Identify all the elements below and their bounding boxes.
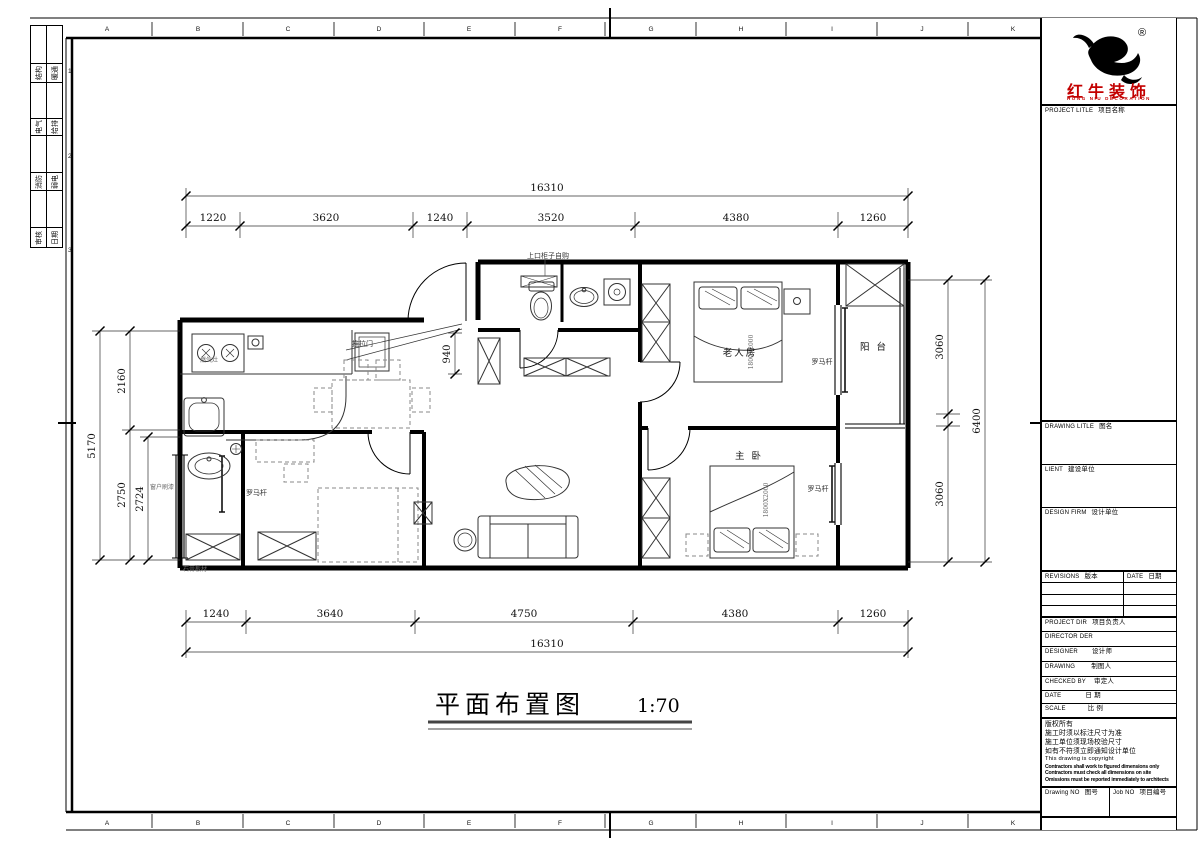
bedroom-door-arc — [368, 432, 410, 474]
copyright-line-en: This drawing is copyright — [1045, 756, 1173, 764]
plan-labels: 老人房 主 卧 阳 台 上口柜子自购 推拉门 罗马杆 罗马杆 罗马杆 窗户刷漆 … — [150, 251, 888, 573]
signoff-label: 审核 — [34, 231, 44, 245]
field-label-zh: 项目负责人 — [1092, 619, 1126, 626]
elder-room — [642, 282, 810, 382]
note-curtain-rod: 罗马杆 — [808, 484, 829, 493]
note-stove: 燃气灶 — [200, 356, 218, 364]
note-curtain-rod: 罗马杆 — [812, 357, 833, 366]
curtain-rod-elder — [842, 308, 848, 392]
grid-letter: B — [196, 26, 200, 33]
field-label-zh: 制图人 — [1091, 663, 1111, 670]
window-balcony-right — [900, 268, 904, 424]
plan-canvas: A B C D E F G H I J K A B C D E F G H I … — [0, 0, 1200, 844]
note-sliding-door: 推拉门 — [352, 339, 373, 348]
bull-horn — [1073, 35, 1094, 48]
field-label-en: DIRECTOR DER — [1045, 634, 1093, 640]
revisions-date-divider — [1123, 570, 1124, 616]
signoff-cell — [46, 82, 63, 119]
field-label-zh: 图名 — [1099, 423, 1112, 430]
signoff-label: 弱电 — [50, 175, 60, 189]
field-checked-by: CHECKED BY审定人 — [1042, 676, 1176, 690]
exterior-walls — [180, 262, 908, 568]
field-revisions: REVISIONS版本 DATE日期 — [1042, 570, 1176, 582]
grid-letter: H — [739, 26, 744, 33]
nightstand — [796, 534, 818, 556]
field-drawing-by: DRAWING制图人 — [1042, 661, 1176, 676]
room-label-master: 主 卧 — [735, 450, 763, 462]
interior-walls — [180, 262, 838, 568]
field-label-zh: 审定人 — [1094, 678, 1114, 685]
signoff-cell: 日期 — [46, 227, 63, 248]
field-project-dir: PROJECT DIR项目负责人 — [1042, 616, 1176, 631]
row-number: 1 — [68, 68, 72, 75]
signoff-cell: 暖通 — [46, 63, 63, 83]
signoff-cell — [30, 82, 47, 119]
drawing-job-divider — [1109, 786, 1110, 818]
dim-bottom-seg: 3640 — [317, 608, 344, 620]
field-label-zh: 日期 — [1148, 573, 1161, 580]
field-project: PROJECT LITLE项目名称 — [1042, 104, 1176, 420]
small-bathroom — [186, 444, 242, 561]
signoff-label: 暖通 — [50, 66, 60, 80]
dim-left-inner: 2724 — [135, 486, 146, 511]
row-number: 2 — [68, 153, 72, 160]
signoff-cell — [30, 190, 47, 228]
signoff-cell — [30, 135, 47, 173]
field-label-en: PROJECT DIR — [1045, 620, 1087, 626]
signoff-cell: 给排 — [46, 118, 63, 136]
fridge — [355, 333, 389, 371]
master-room — [642, 466, 818, 558]
field-label-zh: 设计单位 — [1092, 509, 1119, 516]
side-table — [454, 529, 476, 551]
field-label-en: DESIGN FIRM — [1045, 510, 1087, 516]
grid-letter: A — [105, 26, 110, 33]
grid-letter: J — [920, 26, 923, 33]
dining-set — [314, 360, 430, 428]
field-label-en: SCALE — [1045, 706, 1066, 712]
bathroom-door-arc — [520, 330, 558, 368]
drawing-sheet: A B C D E F G H I J K A B C D E F G H I … — [0, 0, 1200, 844]
signoff-cell — [46, 25, 63, 64]
washing-machine — [604, 279, 630, 305]
signoff-cell: 消防 — [30, 172, 47, 191]
row-number: 3 — [68, 247, 72, 254]
master-room-door-arc — [648, 428, 690, 470]
copyright-line: 如有不符须立即通知设计单位 — [1045, 747, 1173, 756]
curtain-rod-master — [829, 466, 835, 522]
dim-right-seg: 3060 — [935, 334, 946, 359]
field-date: DATE日 期 — [1042, 690, 1176, 703]
grid-letter: G — [648, 26, 653, 33]
note-gypsum: 石膏板材 — [183, 565, 207, 573]
windows — [172, 268, 905, 558]
field-label-zh: 比 例 — [1088, 705, 1103, 712]
field-design-firm: DESIGN FIRM设计单位 — [1042, 507, 1176, 570]
field-label-en: DRAWING — [1045, 664, 1075, 670]
dining-table — [332, 380, 410, 428]
signoff-cell: 结构 — [30, 63, 47, 83]
grid-letter: I — [831, 820, 833, 827]
grid-ruler-bottom: A B C D E F G H I J K — [105, 814, 1016, 828]
small-bedroom — [256, 440, 432, 562]
grid-letter: F — [558, 26, 562, 33]
field-drawing-title: DRAWING LITLE图名 — [1042, 420, 1176, 464]
company-name-en: HONG NIU DECORATION — [1042, 96, 1176, 101]
grid-ruler-top: A B C D E F G H I J K — [105, 22, 1016, 36]
field-label-zh: 项目编号 — [1140, 789, 1167, 796]
signoff-cell: 弱电 — [46, 172, 63, 191]
window-balcony-bottom — [845, 424, 905, 428]
signoff-label: 电气 — [34, 120, 44, 134]
window-elder — [835, 305, 841, 395]
dim-right-total: 6400 — [972, 408, 983, 433]
field-label-zh: 项目名称 — [1098, 107, 1125, 114]
hall-cabinet — [524, 358, 610, 376]
curtain-rod-bedroom — [219, 456, 225, 512]
corridor-cabinets — [478, 338, 610, 384]
grid-letter: F — [558, 820, 562, 827]
grid-letter: C — [286, 26, 291, 33]
dim-top-seg: 1260 — [860, 212, 887, 224]
dim-top-seg: 4380 — [723, 212, 750, 224]
view-title: 平面布置图 — [435, 690, 585, 719]
bed — [710, 466, 794, 558]
nightstand — [784, 289, 810, 314]
dim-top-total: 16310 — [530, 182, 563, 194]
signoff-label: 日期 — [50, 231, 60, 245]
bull-body — [1088, 36, 1140, 75]
grid-letter: E — [467, 820, 472, 827]
field-client: LIENT建设单位 — [1042, 464, 1176, 507]
signoff-cell — [30, 25, 47, 64]
field-label-en: Drawing NO — [1045, 790, 1080, 796]
copyright-line-en: Contractors shall work to figured dimens… — [1045, 764, 1173, 771]
dim-right-seg: 3060 — [935, 481, 946, 506]
dim-top-seg: 3620 — [313, 212, 340, 224]
bed-size-label: 1800X2000 — [748, 334, 755, 369]
room-label-balcony: 阳 台 — [860, 341, 888, 353]
field-label-zh: 设计师 — [1092, 648, 1112, 655]
grid-letter: H — [739, 820, 744, 827]
revision-row-empty — [1042, 582, 1176, 594]
grid-letter: I — [831, 26, 833, 33]
field-label-en: Job NO — [1113, 790, 1135, 796]
field-label-en: DRAWING LITLE — [1045, 424, 1094, 430]
sheet-frame — [30, 8, 1197, 838]
grid-letter: J — [920, 820, 923, 827]
field-label-zh: 图号 — [1085, 789, 1098, 796]
kitchen — [180, 324, 462, 440]
elder-room-door-arc — [640, 362, 680, 402]
field-label-en: REVISIONS — [1045, 574, 1079, 580]
copyright-line-en: Contractors must check all dimensions on… — [1045, 770, 1173, 777]
dim-left-seg: 2750 — [117, 482, 128, 507]
field-label-en: DATE — [1045, 693, 1061, 699]
dim-bottom-seg: 1260 — [860, 608, 887, 620]
window-master — [835, 463, 841, 525]
dim-left-seg: 2160 — [117, 368, 128, 393]
field-label-zh: 建设单位 — [1068, 466, 1095, 473]
dim-top-seg: 3520 — [538, 212, 565, 224]
signoff-cell — [46, 135, 63, 173]
copyright-block: 版权所有 施工时须以标注尺寸为准 施工单位须现场校验尺寸 如有不符须立即通知设计… — [1042, 717, 1176, 786]
note-curtain-rod: 罗马杆 — [246, 488, 267, 497]
signoff-cell — [46, 190, 63, 228]
bed-size-label: 1800X2000 — [763, 482, 770, 517]
grid-letter: D — [377, 820, 382, 827]
dim-top-seg: 1240 — [427, 212, 454, 224]
desk — [256, 440, 314, 462]
signoff-label: 给排 — [50, 120, 60, 134]
field-scale: SCALE比 例 — [1042, 703, 1176, 717]
title-block: ® 红牛装饰 HONG NIU DECORATION PROJECT LITLE… — [1040, 18, 1177, 830]
top-bathroom — [521, 259, 630, 320]
grid-letter: G — [648, 820, 653, 827]
dim-bottom-seg: 1240 — [203, 608, 230, 620]
signoff-cell: 审核 — [30, 227, 47, 248]
revision-row-empty — [1042, 594, 1176, 605]
nightstand — [686, 534, 708, 556]
dim-bottom-seg: 4750 — [511, 608, 538, 620]
view-scale: 1:70 — [637, 695, 680, 717]
field-label-en: PROJECT LITLE — [1045, 108, 1093, 114]
grid-letter: B — [196, 820, 200, 827]
copyright-line-en: Omissions must be reported immediately t… — [1045, 777, 1173, 784]
grid-letter: E — [467, 26, 472, 33]
field-rev-date: DATE日期 — [1127, 573, 1162, 581]
wardrobe — [642, 284, 670, 362]
grid-letter: C — [286, 820, 291, 827]
copyright-line: 施工时须以标注尺寸为准 — [1045, 729, 1173, 738]
field-director: DIRECTOR DER — [1042, 631, 1176, 646]
dim-corridor: 940 — [442, 344, 453, 363]
chair — [284, 464, 308, 482]
toilet — [531, 292, 552, 320]
balcony — [846, 264, 904, 306]
copyright-line: 施工单位须现场校验尺寸 — [1045, 738, 1173, 747]
field-label-zh: 日 期 — [1085, 692, 1100, 699]
dim-bottom-total: 16310 — [530, 638, 563, 650]
copyright-line: 版权所有 — [1045, 720, 1173, 729]
entry-door-arc — [408, 263, 466, 321]
field-label-en: DESIGNER — [1045, 649, 1078, 655]
signoff-label: 结构 — [34, 66, 44, 80]
living-room — [454, 465, 578, 558]
blanket-curve — [710, 472, 794, 512]
signoff-label: 消防 — [34, 175, 44, 189]
field-label-en: CHECKED BY — [1045, 679, 1086, 685]
view-title-group: 平面布置图 1:70 — [428, 690, 692, 729]
note-window: 窗户刷漆 — [150, 483, 174, 491]
bed — [318, 488, 418, 562]
field-job-no: Job NO项目编号 — [1113, 789, 1166, 797]
field-designer: DESIGNER设计师 — [1042, 646, 1176, 661]
field-label-en: DATE — [1127, 574, 1143, 580]
grid-letter: A — [105, 820, 110, 827]
grid-letter: K — [1011, 820, 1016, 827]
dim-bottom-seg: 4380 — [722, 608, 749, 620]
grid-letter: K — [1011, 26, 1016, 33]
field-label-en: LIENT — [1045, 467, 1063, 473]
field-label-zh: 版本 — [1084, 573, 1097, 580]
registered-mark: ® — [1138, 27, 1146, 39]
revision-row-empty — [1042, 605, 1176, 616]
signoff-cell: 电气 — [30, 118, 47, 136]
stove — [192, 334, 244, 372]
note-upper-cabinet: 上口柜子自购 — [527, 251, 569, 260]
dim-left-total: 5170 — [87, 433, 98, 458]
dim-top-seg: 1220 — [200, 212, 227, 224]
grid-letter: D — [377, 26, 382, 33]
